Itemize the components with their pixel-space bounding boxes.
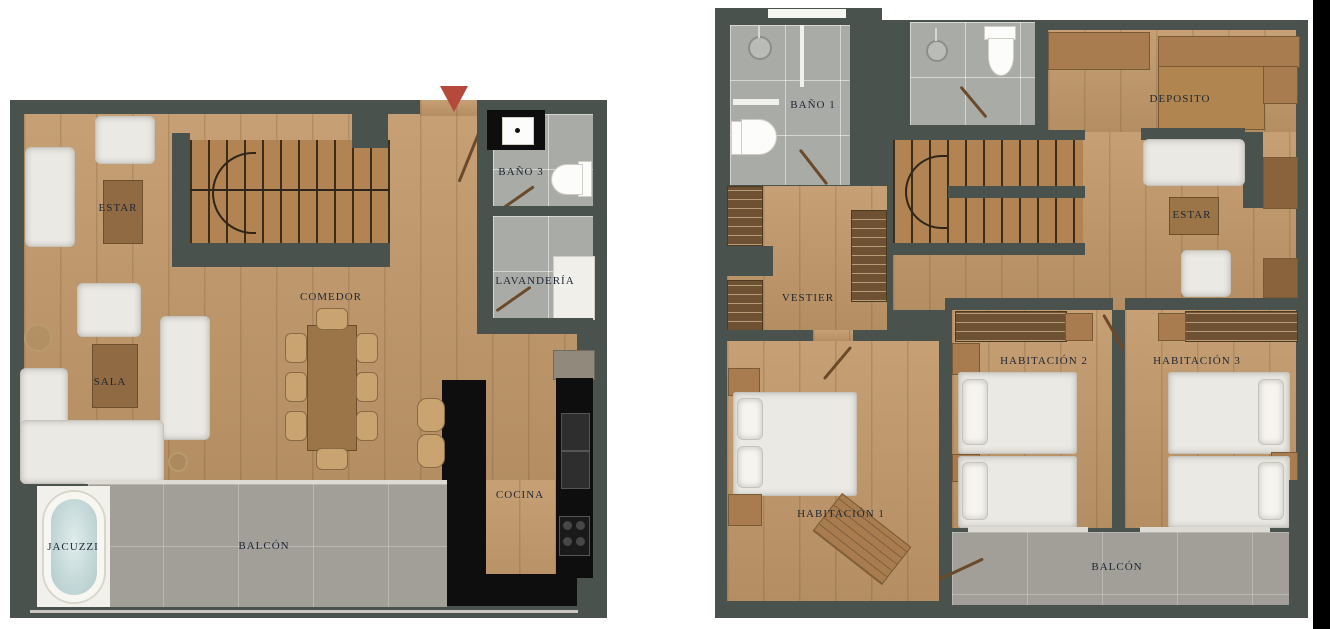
dining-chair-right-1 — [356, 333, 378, 363]
room-label-bano3: BAÑO 3 — [498, 166, 543, 178]
laundry-bottom-wall — [477, 318, 593, 334]
room-label-balcon-f2: BALCÓN — [1091, 561, 1142, 573]
bath3-sink-drain — [515, 128, 520, 133]
bath1-shower-glass-top — [768, 9, 846, 18]
room-label-habitacion2: HABITACIÓN 2 — [1000, 355, 1088, 367]
island-stool-1 — [417, 398, 445, 432]
deposito-closet-top — [1158, 36, 1300, 68]
hab3-wardrobe-side — [1158, 313, 1186, 341]
kitchen-island — [442, 380, 486, 576]
room-label-lavanderia: LAVANDERÍA — [495, 275, 574, 287]
hab2-nightstand-1 — [952, 343, 980, 375]
vestier-wardrobe-left-2 — [727, 280, 763, 332]
vestier-bottom-wall-left — [727, 330, 813, 341]
vestier-wall-jut — [715, 246, 773, 276]
stairs2-top-wall — [893, 130, 1085, 140]
dining-chair-top — [316, 308, 348, 330]
stairs2-mid-wall — [948, 186, 1085, 198]
kitchen-bottom-counter — [442, 574, 593, 606]
dining-chair-right-3 — [356, 411, 378, 441]
dining-chair-left-3 — [285, 411, 307, 441]
bath2-tile-floor — [910, 22, 1035, 125]
washing-machine — [553, 256, 595, 320]
hab3-pillow-2 — [1258, 462, 1284, 520]
bath2-shower-head-icon — [926, 40, 948, 62]
balcony2-right-wall — [1289, 480, 1308, 605]
estar-armchair-top — [95, 116, 155, 164]
stair-lower-wall — [172, 243, 390, 267]
floor-plans-canvas: ESTAR SALA COMEDOR BAÑO 3 LAVANDERÍA COC… — [0, 0, 1330, 629]
hab2-balcony-threshold — [968, 527, 1088, 532]
estar2-console-bottom — [1263, 258, 1298, 298]
dining-chair-right-2 — [356, 372, 378, 402]
hab1-bench — [728, 494, 762, 526]
dining-table — [307, 325, 357, 451]
bath3-toilet-bowl — [551, 164, 583, 195]
sala-round-tray — [168, 452, 188, 472]
room-label-estar2: ESTAR — [1173, 209, 1212, 221]
burner-1 — [563, 521, 572, 530]
room-label-vestier: VESTIER — [782, 292, 834, 304]
hab3-balcony-threshold — [1140, 527, 1270, 532]
kitchen-appliance-2 — [561, 451, 590, 489]
entry-pillar — [352, 114, 388, 148]
room-label-estar: ESTAR — [99, 202, 138, 214]
vestier-bottom-wall-right — [853, 330, 893, 341]
estar2-sofa — [1143, 139, 1245, 186]
room-label-balcon-f1: BALCÓN — [238, 540, 289, 552]
stairs2-bottom-wall — [890, 243, 1085, 255]
right-edge-black-band — [1313, 0, 1330, 629]
bath1-shower-cord — [758, 25, 760, 38]
hab2-pillow-2 — [962, 462, 988, 520]
room-label-comedor: COMEDOR — [300, 291, 362, 303]
room-label-habitacion1: HABITACIÓN 1 — [797, 508, 885, 520]
hab3-pillow-1 — [1258, 379, 1284, 445]
hab3-wardrobe — [1185, 311, 1298, 342]
hall-counter — [553, 350, 595, 380]
dining-chair-left-1 — [285, 333, 307, 363]
bath2-toilet-bowl — [988, 38, 1014, 76]
room-label-bano1: BAÑO 1 — [790, 99, 835, 111]
bath3-lav-wall — [493, 206, 593, 216]
bath1-shower-head-icon — [748, 36, 772, 60]
room-label-habitacion3: HABITACIÓN 3 — [1153, 355, 1241, 367]
estar2-armchair — [1181, 250, 1231, 297]
island-stool-2 — [417, 434, 445, 468]
burner-2 — [576, 521, 585, 530]
estar2-console-top — [1263, 157, 1298, 209]
bath1-shelf — [733, 99, 779, 105]
deposito-closet-left — [1048, 32, 1150, 70]
hab2-wardrobe-side — [1065, 313, 1093, 341]
hab1-pillow-2 — [737, 446, 763, 488]
estar-sofa — [25, 147, 75, 247]
sala-sofa-right — [160, 316, 210, 440]
kitchen-appliance-1 — [561, 413, 590, 451]
floor1-bottom-frame — [30, 610, 578, 613]
hab2-wardrobe — [955, 311, 1067, 342]
room-label-jacuzzi: JACUZZI — [47, 541, 99, 553]
vestier-wardrobe-right — [851, 210, 887, 302]
burner-4 — [576, 537, 585, 546]
dining-chair-left-2 — [285, 372, 307, 402]
dining-chair-bottom — [316, 448, 348, 470]
room-label-sala: SALA — [94, 376, 127, 388]
sala-sectional-sofa — [20, 420, 164, 484]
estar-side-table — [24, 324, 52, 352]
vestier-wardrobe-left-1 — [727, 186, 763, 246]
hab2-pillow-1 — [962, 379, 988, 445]
bath1-toilet-bowl — [741, 119, 777, 155]
burner-3 — [563, 537, 572, 546]
room-label-cocina: COCINA — [496, 489, 544, 501]
bath1-shower-glass — [800, 25, 804, 87]
hab1-pillow-1 — [737, 398, 763, 440]
estar-armchair-mid — [77, 283, 141, 337]
estar2-pillar — [1243, 132, 1263, 208]
bath2-shower-cord — [935, 28, 937, 41]
deposito-closet-step — [1263, 66, 1298, 104]
floor1-bottom-right-pillar — [577, 578, 607, 614]
room-label-deposito: DEPOSITO — [1150, 93, 1211, 105]
